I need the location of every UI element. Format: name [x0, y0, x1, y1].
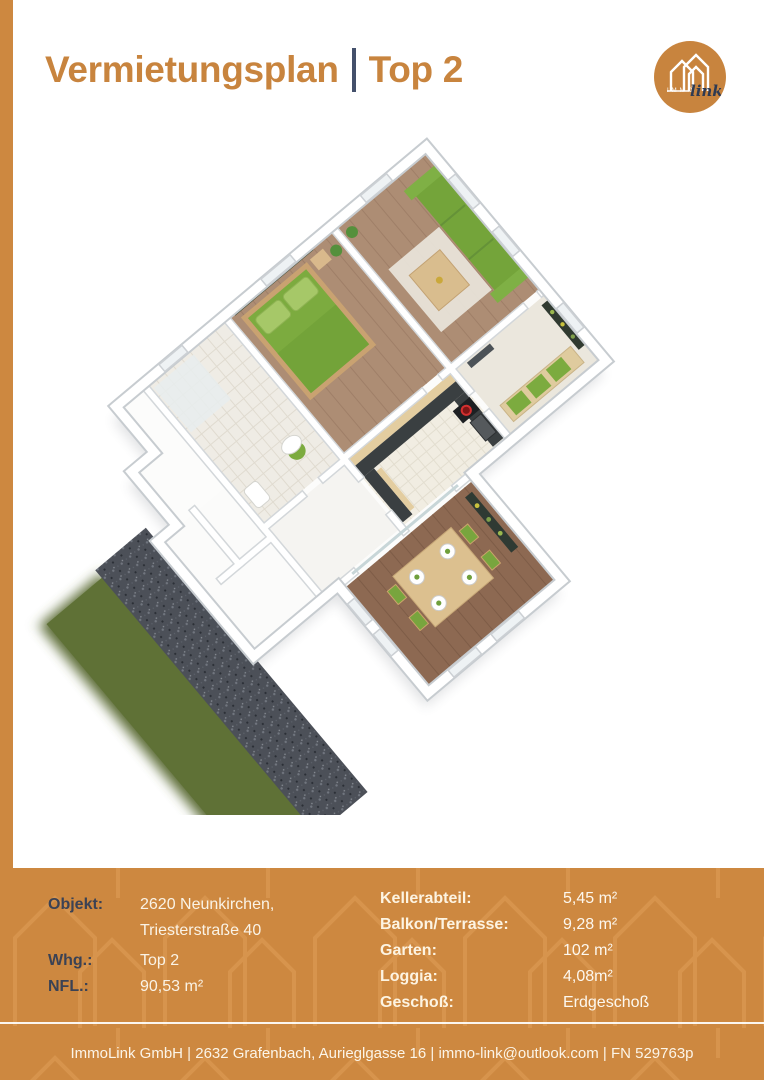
logo-script-text: link — [690, 82, 723, 100]
detail-value: 90,53 m² — [140, 974, 203, 1000]
detail-label: Balkon/Terrasse: — [380, 912, 563, 938]
detail-row-balkon-terrasse: Balkon/Terrasse: 9,28 m² — [380, 912, 649, 938]
details-left-column: Objekt: 2620 Neunkirchen, Triesterstraße… — [48, 892, 274, 1000]
immolink-logo: immo link — [654, 41, 726, 113]
detail-label: Objekt: — [48, 892, 140, 944]
floor-plan-svg — [0, 125, 764, 815]
title-divider — [352, 48, 356, 92]
detail-row-geschoss: Geschoß: Erdgeschoß — [380, 990, 649, 1016]
detail-value: Erdgeschoß — [563, 990, 649, 1016]
page-title: Vermietungsplan — [45, 49, 339, 91]
footer-divider-line — [0, 1022, 764, 1024]
property-details: Objekt: 2620 Neunkirchen, Triesterstraße… — [0, 868, 764, 1080]
detail-value: 9,28 m² — [563, 912, 617, 938]
detail-value: Top 2 — [140, 948, 179, 974]
detail-value: 5,45 m² — [563, 886, 617, 912]
address-line-1: 2620 Neunkirchen, — [140, 892, 274, 918]
detail-row-kellerabteil: Kellerabteil: 5,45 m² — [380, 886, 649, 912]
detail-label: Whg.: — [48, 948, 140, 974]
detail-label: NFL.: — [48, 974, 140, 1000]
detail-row-objekt: Objekt: 2620 Neunkirchen, Triesterstraße… — [48, 892, 274, 944]
detail-value: 102 m² — [563, 938, 613, 964]
detail-row-loggia: Loggia: 4,08m² — [380, 964, 649, 990]
page-header: Vermietungsplan Top 2 — [45, 40, 463, 100]
page-subtitle: Top 2 — [369, 49, 463, 91]
detail-label: Geschoß: — [380, 990, 563, 1016]
detail-row-whg: Whg.: Top 2 — [48, 948, 274, 974]
floor-plan-3d — [0, 125, 764, 815]
house-logo-icon — [654, 41, 726, 113]
details-columns: Objekt: 2620 Neunkirchen, Triesterstraße… — [0, 868, 764, 1022]
detail-label: Garten: — [380, 938, 563, 964]
address-line-2: Triesterstraße 40 — [140, 918, 274, 944]
detail-row-garten: Garten: 102 m² — [380, 938, 649, 964]
detail-value: 4,08m² — [563, 964, 613, 990]
details-right-column: Kellerabteil: 5,45 m² Balkon/Terrasse: 9… — [380, 886, 649, 1016]
vermietungsplan-page: Vermietungsplan Top 2 immo link — [0, 0, 764, 1080]
company-footer-text: ImmoLink GmbH | 2632 Grafenbach, Auriegl… — [0, 1034, 764, 1074]
detail-label: Kellerabteil: — [380, 886, 563, 912]
detail-label: Loggia: — [380, 964, 563, 990]
detail-value: 2620 Neunkirchen, Triesterstraße 40 — [140, 892, 274, 944]
detail-row-nfl: NFL.: 90,53 m² — [48, 974, 274, 1000]
